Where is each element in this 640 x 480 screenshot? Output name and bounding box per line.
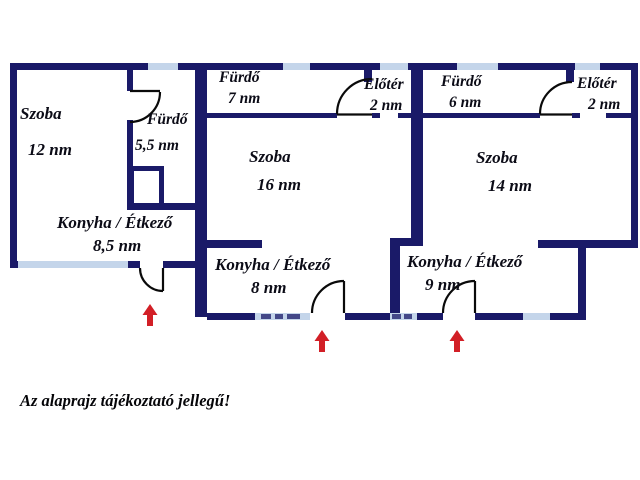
room-name: Fürdő bbox=[441, 72, 482, 92]
room-name: Előtér bbox=[364, 75, 404, 95]
room-area: 6 nm bbox=[449, 93, 482, 113]
entrance-arrow-right bbox=[450, 330, 465, 352]
room-label-szoba-14: Szoba 14 nm bbox=[476, 148, 532, 196]
room-area: 16 nm bbox=[257, 175, 301, 195]
door-arc bbox=[540, 82, 572, 114]
room-name: Szoba bbox=[476, 148, 532, 168]
room-label-eloter-2-middle: Előtér 2 nm bbox=[364, 75, 404, 116]
room-name: Fürdő bbox=[219, 68, 260, 88]
room-name: Fürdő bbox=[147, 110, 188, 130]
room-area: 2 nm bbox=[370, 96, 404, 116]
room-label-konyha-9: Konyha / Étkező 9 nm bbox=[407, 252, 522, 295]
room-label-szoba-12: Szoba 12 nm bbox=[20, 104, 72, 160]
room-name: Konyha / Étkező bbox=[57, 213, 172, 233]
entrance-arrows bbox=[143, 304, 465, 352]
room-label-furdo-7: Fürdő 7 nm bbox=[219, 68, 260, 109]
room-area: 12 nm bbox=[28, 140, 72, 160]
room-name: Szoba bbox=[249, 147, 301, 167]
room-label-szoba-16: Szoba 16 nm bbox=[249, 147, 301, 195]
room-name: Előtér bbox=[577, 74, 620, 94]
room-name: Konyha / Étkező bbox=[407, 252, 522, 272]
room-area: 5,5 nm bbox=[135, 136, 188, 156]
disclaimer-text: Az alaprajz tájékoztató jellegű! bbox=[20, 391, 230, 411]
room-label-konyha-85: Konyha / Étkező 8,5 nm bbox=[57, 213, 172, 256]
room-area: 8,5 nm bbox=[93, 236, 172, 256]
entrance-arrow-middle bbox=[315, 330, 330, 352]
room-area: 2 nm bbox=[588, 95, 620, 115]
room-label-furdo-6: Fürdő 6 nm bbox=[441, 72, 482, 113]
room-label-furdo-55: Fürdő 5,5 nm bbox=[147, 110, 188, 156]
room-area: 8 nm bbox=[251, 278, 330, 298]
room-label-eloter-2-right: Előtér 2 nm bbox=[577, 74, 620, 115]
bathroom-shaft bbox=[132, 169, 162, 206]
door-arc bbox=[140, 268, 163, 291]
room-label-konyha-8: Konyha / Étkező 8 nm bbox=[215, 255, 330, 298]
room-name: Konyha / Étkező bbox=[215, 255, 330, 275]
room-area: 7 nm bbox=[228, 89, 260, 109]
entrance-arrow-left bbox=[143, 304, 158, 326]
room-area: 14 nm bbox=[488, 176, 532, 196]
room-area: 9 nm bbox=[425, 275, 522, 295]
floor-plan-page: Szoba 12 nm Fürdő 5,5 nm Konyha / Étkező… bbox=[0, 0, 640, 480]
room-name: Szoba bbox=[20, 104, 72, 124]
